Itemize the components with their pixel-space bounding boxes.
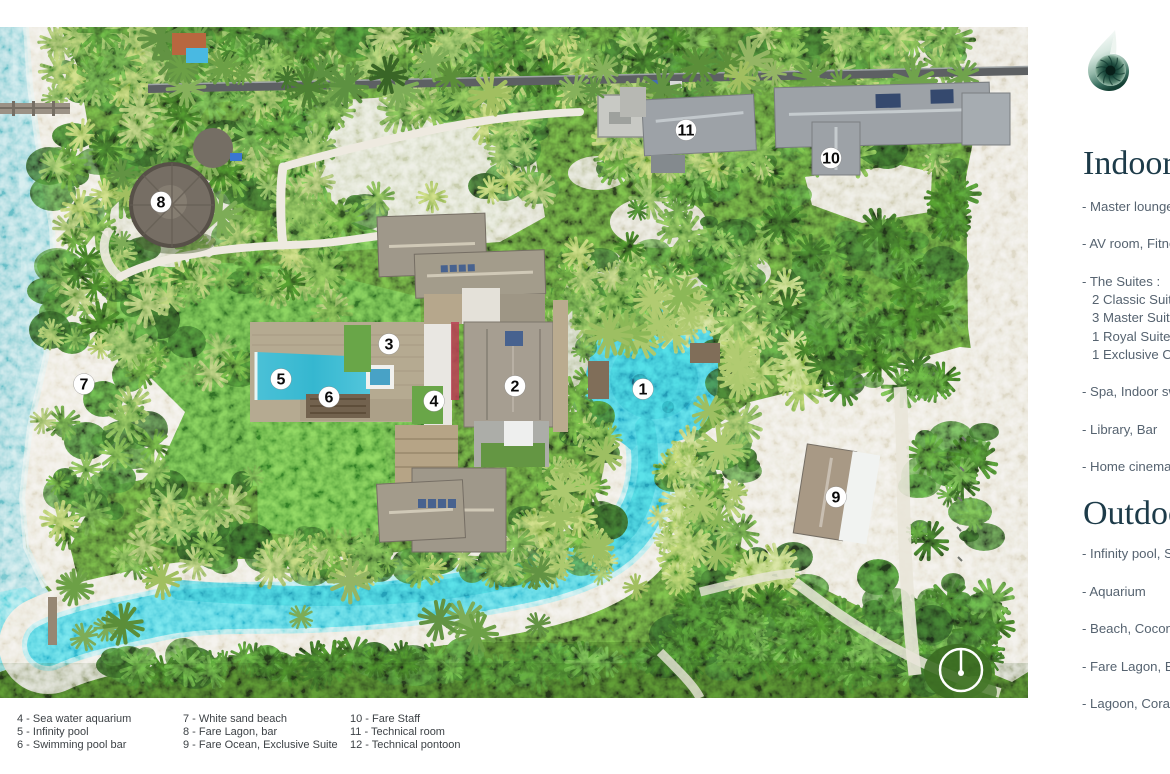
- svg-text:1: 1: [639, 382, 648, 399]
- svg-text:6: 6: [325, 390, 334, 407]
- svg-text:5: 5: [277, 372, 286, 389]
- svg-text:2: 2: [511, 379, 520, 396]
- svg-text:4: 4: [430, 394, 439, 411]
- svg-text:7: 7: [80, 377, 89, 394]
- svg-text:9: 9: [832, 490, 841, 507]
- svg-text:11: 11: [678, 123, 695, 140]
- svg-text:8: 8: [157, 195, 166, 212]
- svg-text:10: 10: [822, 151, 840, 168]
- svg-text:3: 3: [385, 337, 394, 354]
